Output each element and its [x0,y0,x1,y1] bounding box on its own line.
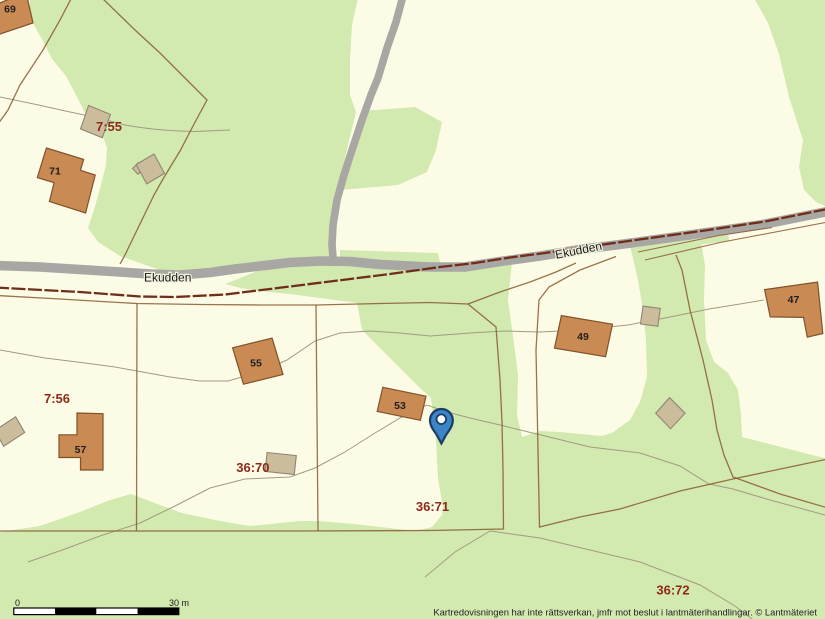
svg-text:49: 49 [577,331,589,343]
svg-text:55: 55 [250,358,262,370]
svg-text:30 m: 30 m [169,598,189,608]
svg-text:Kartredovisningen har inte rät: Kartredovisningen har inte rättsverkan, … [433,607,817,618]
svg-text:36:70: 36:70 [236,460,269,475]
svg-text:36:71: 36:71 [416,499,449,514]
svg-text:53: 53 [394,400,406,412]
svg-text:71: 71 [49,166,61,178]
svg-text:57: 57 [75,444,87,456]
svg-text:0: 0 [15,598,20,608]
svg-text:7:56: 7:56 [44,391,70,406]
svg-text:36:72: 36:72 [656,583,689,598]
svg-text:69: 69 [4,4,16,16]
svg-text:Ekudden: Ekudden [144,271,191,285]
svg-text:47: 47 [788,294,800,306]
svg-text:7:55: 7:55 [96,119,122,134]
